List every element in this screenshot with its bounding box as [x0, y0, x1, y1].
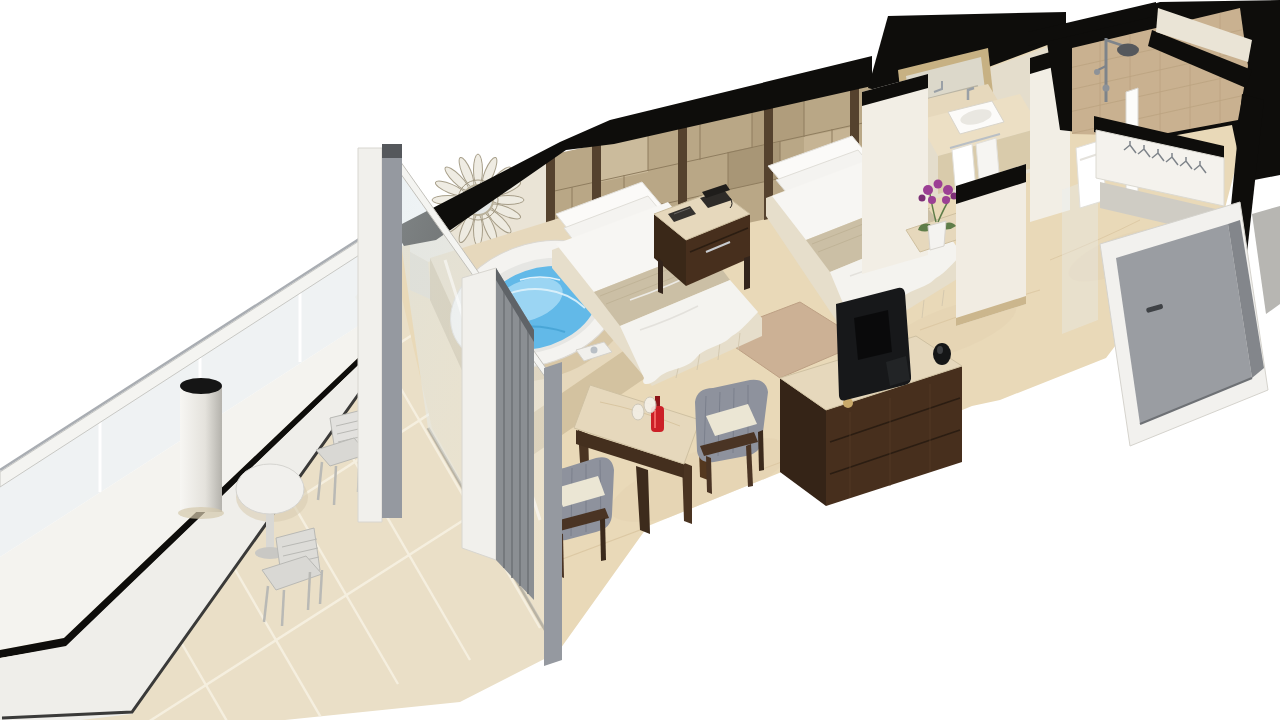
door-side-wall — [1252, 206, 1280, 314]
entry-door — [1100, 202, 1280, 446]
nightstand-leg — [658, 258, 663, 294]
door-stile-right — [544, 362, 562, 666]
column-body — [180, 386, 222, 512]
drinking-glass — [632, 404, 644, 420]
chair-leg — [706, 456, 712, 494]
orchid-pot — [928, 221, 946, 250]
door-post-white — [358, 148, 382, 522]
door-stile-mid — [462, 268, 496, 560]
door-post-gray — [382, 144, 402, 518]
nightstand-leg — [744, 256, 750, 290]
chair-leg — [758, 430, 764, 471]
patio-table-top — [236, 464, 304, 514]
column-base-shadow — [178, 507, 224, 519]
chair-leg — [600, 518, 606, 561]
corridor-pillar — [956, 164, 1026, 326]
tv-inset — [854, 310, 892, 360]
door-post-cap — [382, 144, 402, 158]
column-cut-top — [180, 378, 222, 394]
column — [178, 378, 224, 519]
drinking-glass — [644, 397, 656, 413]
rain-shower-head — [1117, 44, 1139, 57]
tv-speaker — [933, 343, 951, 365]
floorplan-render: 3D cutaway floor plan rendering of a hot… — [0, 0, 1280, 720]
